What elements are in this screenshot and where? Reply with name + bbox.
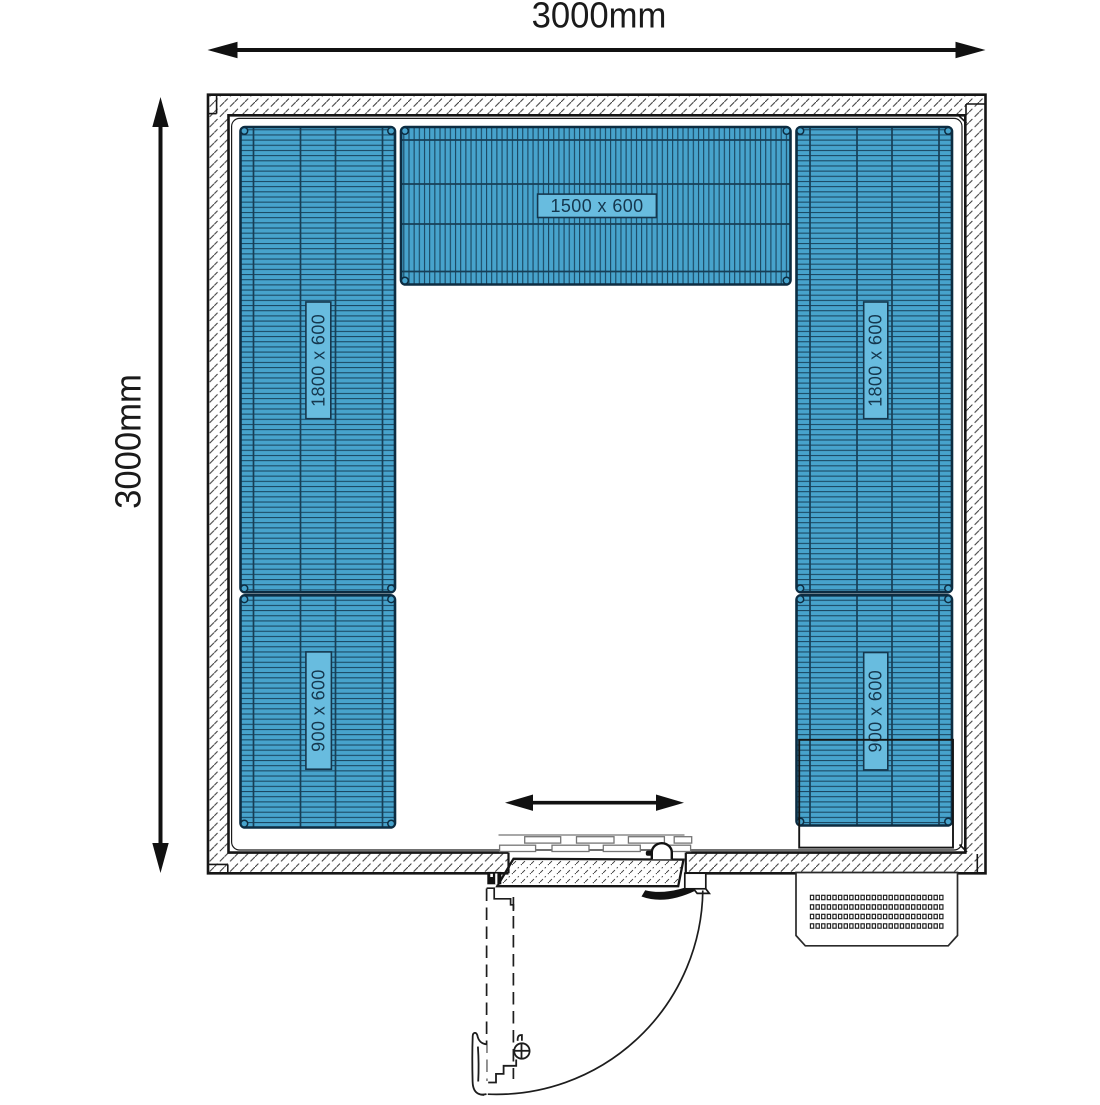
- svg-text:1500 x 600: 1500 x 600: [550, 196, 643, 216]
- svg-text:900 x 600: 900 x 600: [309, 669, 329, 752]
- svg-text:1800 x 600: 1800 x 600: [308, 314, 328, 407]
- svg-text:1800 x 600: 1800 x 600: [866, 314, 886, 407]
- svg-text:3000mm: 3000mm: [108, 374, 149, 509]
- svg-text:3000mm: 3000mm: [532, 0, 667, 36]
